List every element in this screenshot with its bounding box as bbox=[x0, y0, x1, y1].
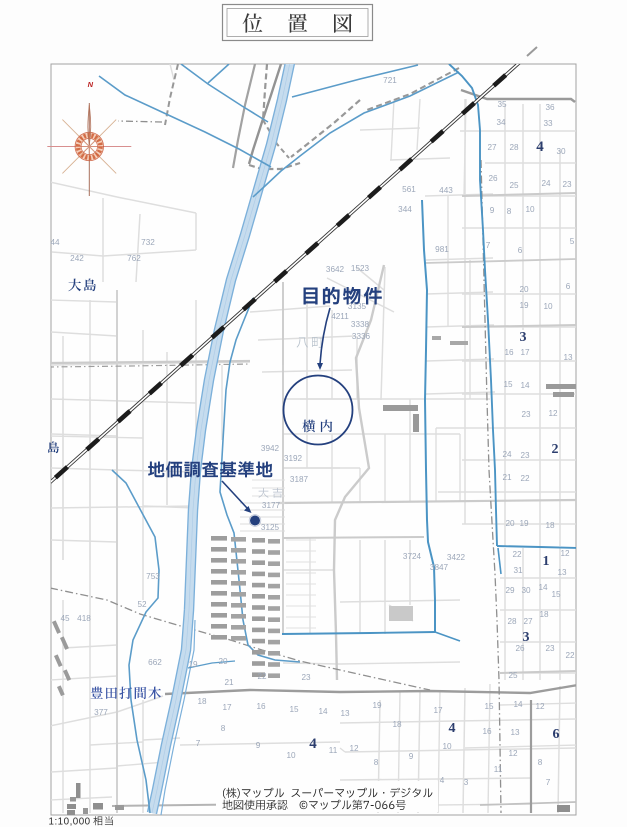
svg-text:3: 3 bbox=[523, 630, 530, 645]
svg-text:23: 23 bbox=[301, 673, 311, 682]
svg-text:10: 10 bbox=[442, 742, 452, 751]
svg-text:10: 10 bbox=[543, 302, 553, 311]
svg-text:3338: 3338 bbox=[351, 320, 370, 329]
svg-text:14: 14 bbox=[318, 707, 328, 716]
svg-text:14: 14 bbox=[538, 583, 548, 592]
svg-text:8: 8 bbox=[507, 207, 512, 216]
svg-text:6: 6 bbox=[553, 727, 560, 742]
svg-text:4: 4 bbox=[536, 139, 544, 155]
svg-text:7: 7 bbox=[486, 241, 491, 250]
svg-text:16: 16 bbox=[256, 702, 266, 711]
svg-text:1:10,000: 1:10,000 bbox=[49, 817, 91, 828]
svg-text:19: 19 bbox=[372, 701, 382, 710]
svg-text:9: 9 bbox=[490, 206, 495, 215]
svg-text:662: 662 bbox=[148, 658, 162, 667]
svg-text:24: 24 bbox=[502, 450, 512, 459]
svg-text:721: 721 bbox=[383, 76, 397, 85]
svg-text:3: 3 bbox=[520, 330, 527, 345]
svg-text:4: 4 bbox=[309, 736, 317, 752]
svg-text:16: 16 bbox=[504, 348, 514, 357]
svg-text:N: N bbox=[88, 80, 94, 89]
svg-text:29: 29 bbox=[505, 586, 515, 595]
svg-text:10: 10 bbox=[525, 205, 535, 214]
svg-text:14: 14 bbox=[513, 700, 523, 709]
svg-text:23: 23 bbox=[545, 644, 555, 653]
svg-text:20: 20 bbox=[505, 519, 515, 528]
svg-text:22: 22 bbox=[520, 474, 530, 483]
svg-text:981: 981 bbox=[435, 245, 449, 254]
svg-text:3125: 3125 bbox=[261, 523, 280, 532]
svg-text:4211: 4211 bbox=[331, 312, 349, 321]
svg-text:10: 10 bbox=[286, 751, 296, 760]
svg-text:26: 26 bbox=[515, 644, 525, 653]
svg-text:3135: 3135 bbox=[348, 302, 367, 311]
svg-text:19: 19 bbox=[188, 660, 198, 669]
svg-text:33: 33 bbox=[543, 119, 553, 128]
svg-text:15: 15 bbox=[289, 705, 299, 714]
svg-text:12: 12 bbox=[560, 549, 570, 558]
svg-text:23: 23 bbox=[521, 410, 531, 419]
svg-text:44: 44 bbox=[50, 238, 60, 247]
svg-text:28: 28 bbox=[507, 617, 517, 626]
svg-text:8: 8 bbox=[538, 758, 543, 767]
svg-text:3: 3 bbox=[464, 778, 469, 787]
svg-text:18: 18 bbox=[545, 521, 555, 530]
svg-text:18: 18 bbox=[197, 697, 207, 706]
svg-text:12: 12 bbox=[508, 749, 518, 758]
svg-text:13: 13 bbox=[563, 353, 573, 362]
svg-text:23: 23 bbox=[520, 451, 530, 460]
svg-text:21: 21 bbox=[502, 473, 512, 482]
svg-text:3847: 3847 bbox=[430, 563, 449, 572]
svg-text:3942: 3942 bbox=[261, 444, 280, 453]
svg-text:344: 344 bbox=[398, 205, 412, 214]
svg-text:3177: 3177 bbox=[262, 501, 281, 510]
svg-text:443: 443 bbox=[439, 186, 453, 195]
svg-text:15: 15 bbox=[484, 702, 494, 711]
svg-text:7: 7 bbox=[196, 739, 201, 748]
svg-text:15: 15 bbox=[503, 380, 513, 389]
svg-text:3336: 3336 bbox=[352, 332, 371, 341]
svg-text:15: 15 bbox=[551, 590, 561, 599]
svg-text:17: 17 bbox=[222, 703, 232, 712]
svg-text:6: 6 bbox=[566, 282, 571, 291]
svg-text:12: 12 bbox=[535, 702, 545, 711]
svg-text:22: 22 bbox=[512, 550, 522, 559]
svg-text:45: 45 bbox=[60, 614, 70, 623]
svg-text:377: 377 bbox=[94, 708, 108, 717]
svg-text:18: 18 bbox=[392, 720, 402, 729]
svg-text:732: 732 bbox=[141, 238, 155, 247]
svg-text:11: 11 bbox=[494, 765, 503, 774]
svg-text:19: 19 bbox=[519, 519, 529, 528]
svg-text:13: 13 bbox=[557, 568, 567, 577]
svg-text:561: 561 bbox=[402, 185, 416, 194]
svg-text:12: 12 bbox=[349, 744, 359, 753]
svg-text:2: 2 bbox=[552, 442, 559, 457]
svg-text:25: 25 bbox=[509, 181, 519, 190]
svg-text:12: 12 bbox=[548, 409, 558, 418]
svg-text:19: 19 bbox=[519, 301, 529, 310]
svg-text:30: 30 bbox=[556, 147, 566, 156]
svg-text:31: 31 bbox=[513, 566, 523, 575]
svg-text:762: 762 bbox=[127, 254, 141, 263]
svg-text:4: 4 bbox=[440, 776, 445, 785]
svg-text:3422: 3422 bbox=[447, 553, 466, 562]
svg-text:27: 27 bbox=[487, 143, 497, 152]
svg-text:5: 5 bbox=[570, 237, 575, 246]
svg-text:23: 23 bbox=[562, 180, 572, 189]
svg-text:3192: 3192 bbox=[284, 454, 303, 463]
svg-text:20: 20 bbox=[519, 285, 529, 294]
svg-text:1523: 1523 bbox=[351, 264, 370, 273]
svg-text:7: 7 bbox=[546, 778, 551, 787]
svg-text:25: 25 bbox=[508, 671, 518, 680]
svg-text:28: 28 bbox=[509, 143, 519, 152]
svg-text:3642: 3642 bbox=[326, 265, 345, 274]
svg-text:13: 13 bbox=[510, 728, 520, 737]
svg-text:9: 9 bbox=[256, 741, 261, 750]
svg-text:418: 418 bbox=[77, 614, 91, 623]
svg-text:16: 16 bbox=[482, 727, 492, 736]
svg-text:35: 35 bbox=[497, 100, 507, 109]
svg-text:26: 26 bbox=[488, 174, 498, 183]
svg-text:24: 24 bbox=[541, 179, 551, 188]
svg-text:22: 22 bbox=[565, 651, 575, 660]
svg-text:21: 21 bbox=[224, 678, 234, 687]
svg-text:20: 20 bbox=[218, 657, 228, 666]
svg-text:14: 14 bbox=[520, 381, 530, 390]
svg-text:9: 9 bbox=[409, 752, 414, 761]
svg-text:52: 52 bbox=[137, 600, 147, 609]
svg-text:1: 1 bbox=[543, 554, 550, 569]
svg-text:18: 18 bbox=[539, 610, 549, 619]
svg-text:8: 8 bbox=[221, 724, 226, 733]
svg-text:8: 8 bbox=[374, 758, 379, 767]
svg-text:34: 34 bbox=[496, 118, 506, 127]
svg-text:4: 4 bbox=[449, 721, 456, 736]
svg-text:11: 11 bbox=[329, 746, 338, 755]
svg-text:17: 17 bbox=[520, 348, 530, 357]
svg-text:22: 22 bbox=[257, 672, 267, 681]
svg-text:27: 27 bbox=[523, 617, 533, 626]
svg-text:30: 30 bbox=[521, 586, 531, 595]
svg-text:17: 17 bbox=[433, 706, 443, 715]
svg-text:3187: 3187 bbox=[290, 475, 309, 484]
svg-text:242: 242 bbox=[70, 254, 84, 263]
svg-text:36: 36 bbox=[545, 103, 555, 112]
svg-text:753: 753 bbox=[146, 572, 160, 581]
svg-text:6: 6 bbox=[518, 246, 523, 255]
svg-text:13: 13 bbox=[340, 709, 350, 718]
svg-text:3724: 3724 bbox=[403, 552, 422, 561]
